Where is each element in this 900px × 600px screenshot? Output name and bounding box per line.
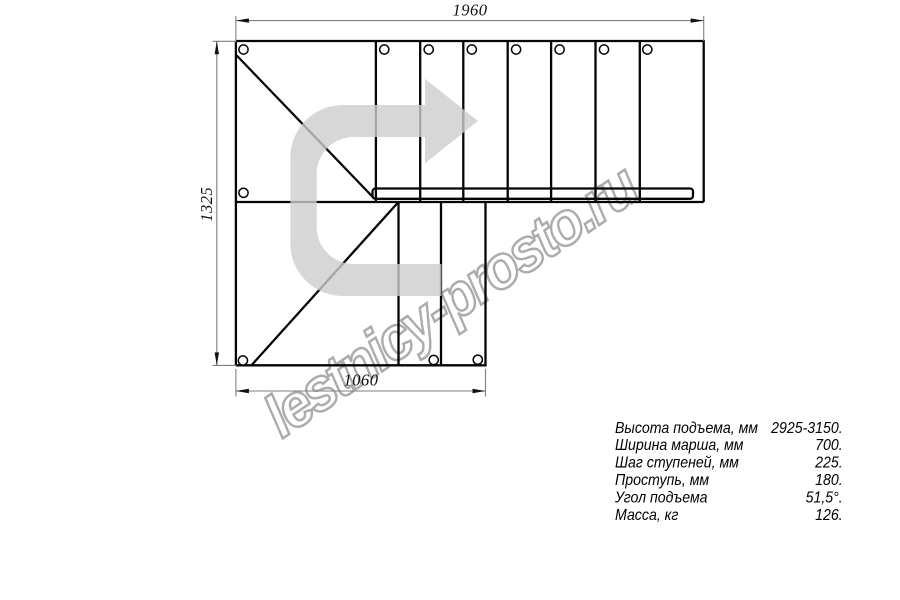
svg-text:2925-3150.: 2925-3150. xyxy=(770,419,843,437)
svg-text:180.: 180. xyxy=(815,471,843,489)
svg-text:Высота подъема, мм: Высота подъема, мм xyxy=(615,419,759,437)
svg-text:225.: 225. xyxy=(814,454,842,472)
svg-text:Шаг ступеней, мм: Шаг ступеней, мм xyxy=(615,454,739,472)
svg-text:Ширина марша, мм: Ширина марша, мм xyxy=(615,436,744,454)
svg-text:1325: 1325 xyxy=(197,187,216,222)
svg-text:126.: 126. xyxy=(815,506,843,524)
svg-text:1960: 1960 xyxy=(453,1,488,20)
svg-text:Масса, кг: Масса, кг xyxy=(615,506,679,524)
svg-text:700.: 700. xyxy=(815,436,843,454)
svg-text:1060: 1060 xyxy=(344,371,379,390)
svg-text:51,5°.: 51,5°. xyxy=(806,489,843,507)
svg-text:Проступь, мм: Проступь, мм xyxy=(615,471,710,489)
svg-text:Угол подъема: Угол подъема xyxy=(614,489,707,507)
